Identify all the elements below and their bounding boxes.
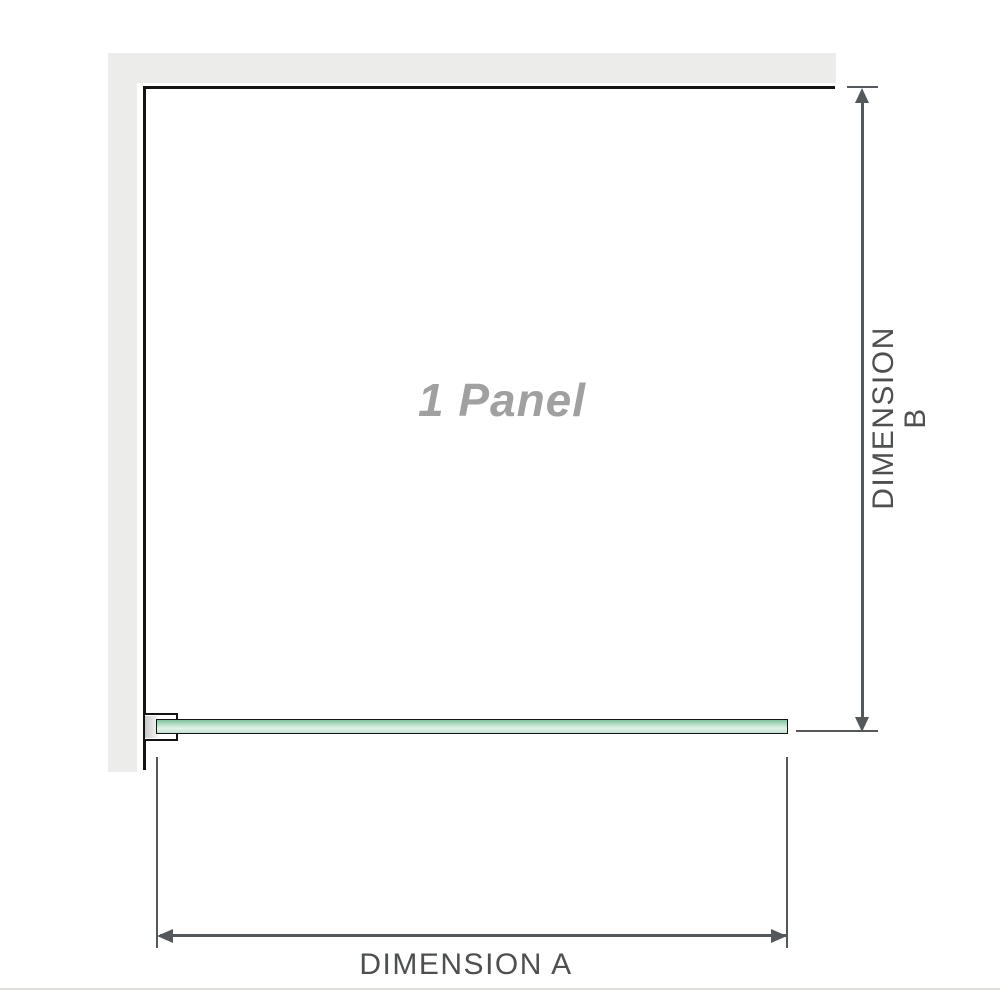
dimension-a-arrow-right-icon <box>771 929 787 943</box>
dimension-b-line <box>861 92 864 724</box>
diagram-canvas: 1 Panel DIMENSION B DIMENSION A <box>0 0 1000 1000</box>
dimension-a-label: DIMENSION A <box>336 946 596 984</box>
dimension-b-label: DIMENSION B <box>868 318 900 518</box>
dimension-b-arrow-up-icon <box>855 88 869 103</box>
panel-outline-top <box>143 86 835 89</box>
wall-top <box>108 53 836 83</box>
panel-count-label: 1 Panel <box>352 374 652 426</box>
glass-panel <box>156 719 788 734</box>
dimension-a-tick-left <box>156 757 158 948</box>
wall-left <box>108 53 137 772</box>
dimension-a-arrow-left-icon <box>157 929 173 943</box>
footer-divider <box>0 988 1000 990</box>
dimension-b-arrow-down-icon <box>855 717 869 732</box>
dimension-a-line <box>160 934 787 937</box>
panel-outline-left <box>143 86 146 770</box>
dimension-a-tick-right <box>786 757 788 948</box>
